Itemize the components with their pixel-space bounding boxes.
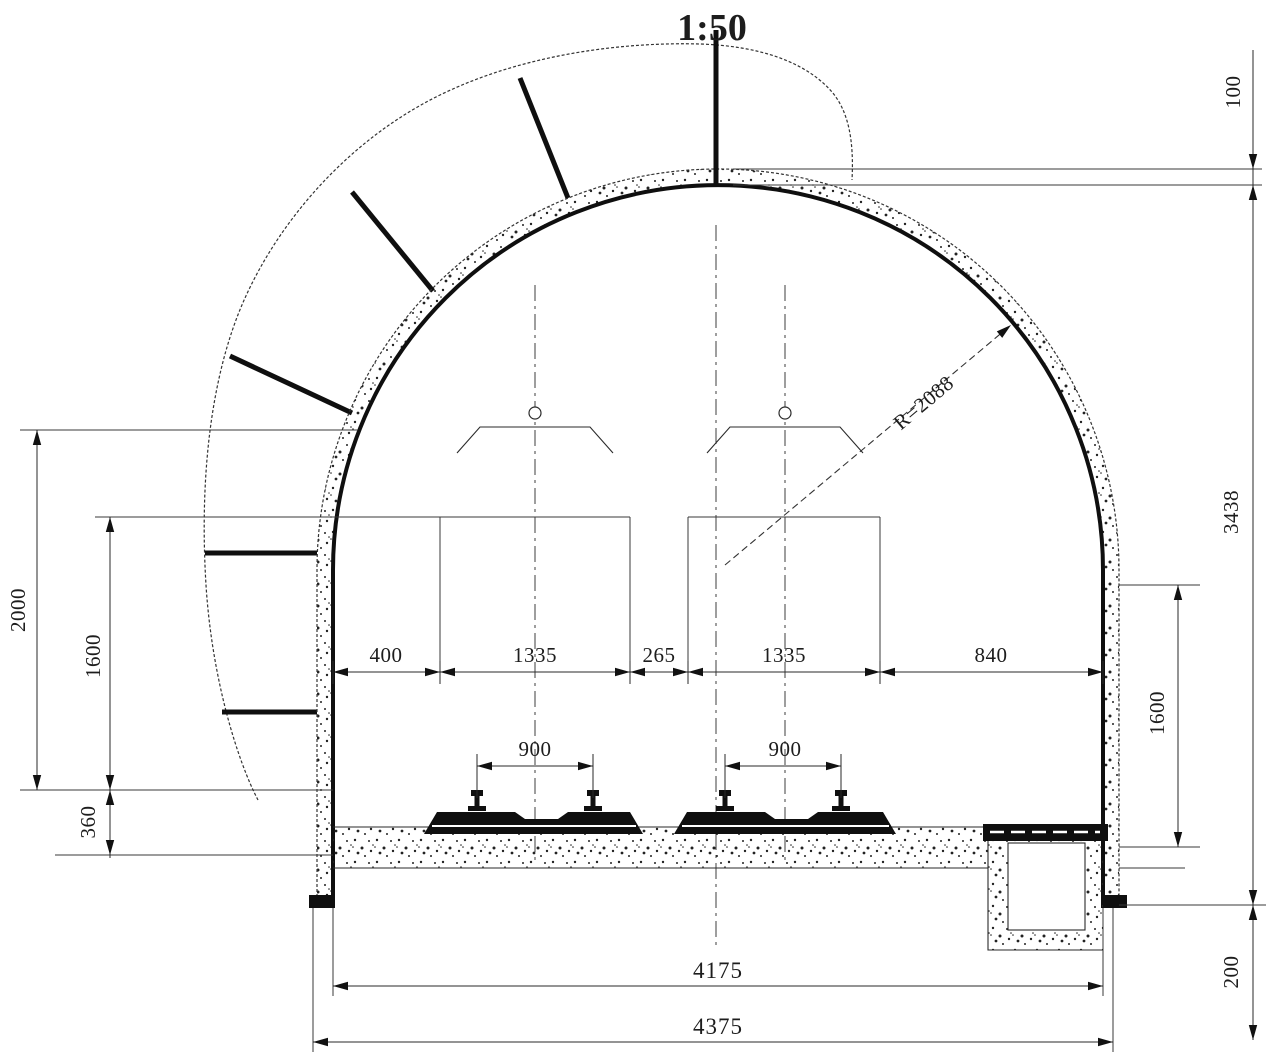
dim-total-height: 3438 bbox=[1219, 490, 1243, 534]
dim-left-outer-height: 2000 bbox=[6, 588, 30, 632]
lining-stipple bbox=[317, 169, 1119, 897]
radius-leader: R=2088 bbox=[725, 322, 1014, 565]
dim-span-outer: 4375 bbox=[693, 1014, 743, 1039]
dim-lining-thickness: 100 bbox=[1221, 76, 1245, 109]
right-wall-footing bbox=[1101, 895, 1127, 908]
radius-dim-label: R=2088 bbox=[889, 371, 959, 435]
left-wall-footing bbox=[309, 895, 335, 908]
dim-span-inner: 4175 bbox=[693, 958, 743, 983]
dim-chain-1335-right: 1335 bbox=[762, 643, 806, 667]
dim-gauge-right: 900 bbox=[769, 737, 802, 761]
tunnel-lining bbox=[309, 169, 1127, 908]
dim-chain-1335-left: 1335 bbox=[513, 643, 557, 667]
dim-ballast-depth: 360 bbox=[76, 806, 100, 839]
dim-chain-840: 840 bbox=[975, 643, 1008, 667]
dimension-labels: 100 3438 2000 1600 360 400 1335 265 1335… bbox=[6, 76, 1245, 1040]
dim-ditch-depth: 200 bbox=[1219, 956, 1243, 989]
dim-chain-265: 265 bbox=[643, 643, 676, 667]
dim-gauge-left: 900 bbox=[519, 737, 552, 761]
tunnel-cross-section-drawing: 1:50 bbox=[0, 0, 1280, 1058]
drawing-canvas: 1:50 bbox=[0, 0, 1280, 1058]
scale-label: 1:50 bbox=[677, 7, 747, 49]
excavation-outline bbox=[204, 44, 852, 800]
lining-joint-marks bbox=[205, 78, 568, 712]
sleeper-left bbox=[424, 812, 643, 834]
dim-chain-400: 400 bbox=[370, 643, 403, 667]
dim-left-inner-height: 1600 bbox=[81, 634, 105, 678]
drainage-ditch bbox=[983, 824, 1108, 950]
lining-outer-face bbox=[317, 169, 1119, 897]
extension-lines bbox=[20, 169, 1266, 1052]
dimension-lines bbox=[33, 50, 1257, 1046]
dim-right-lower-height: 1600 bbox=[1145, 691, 1169, 735]
